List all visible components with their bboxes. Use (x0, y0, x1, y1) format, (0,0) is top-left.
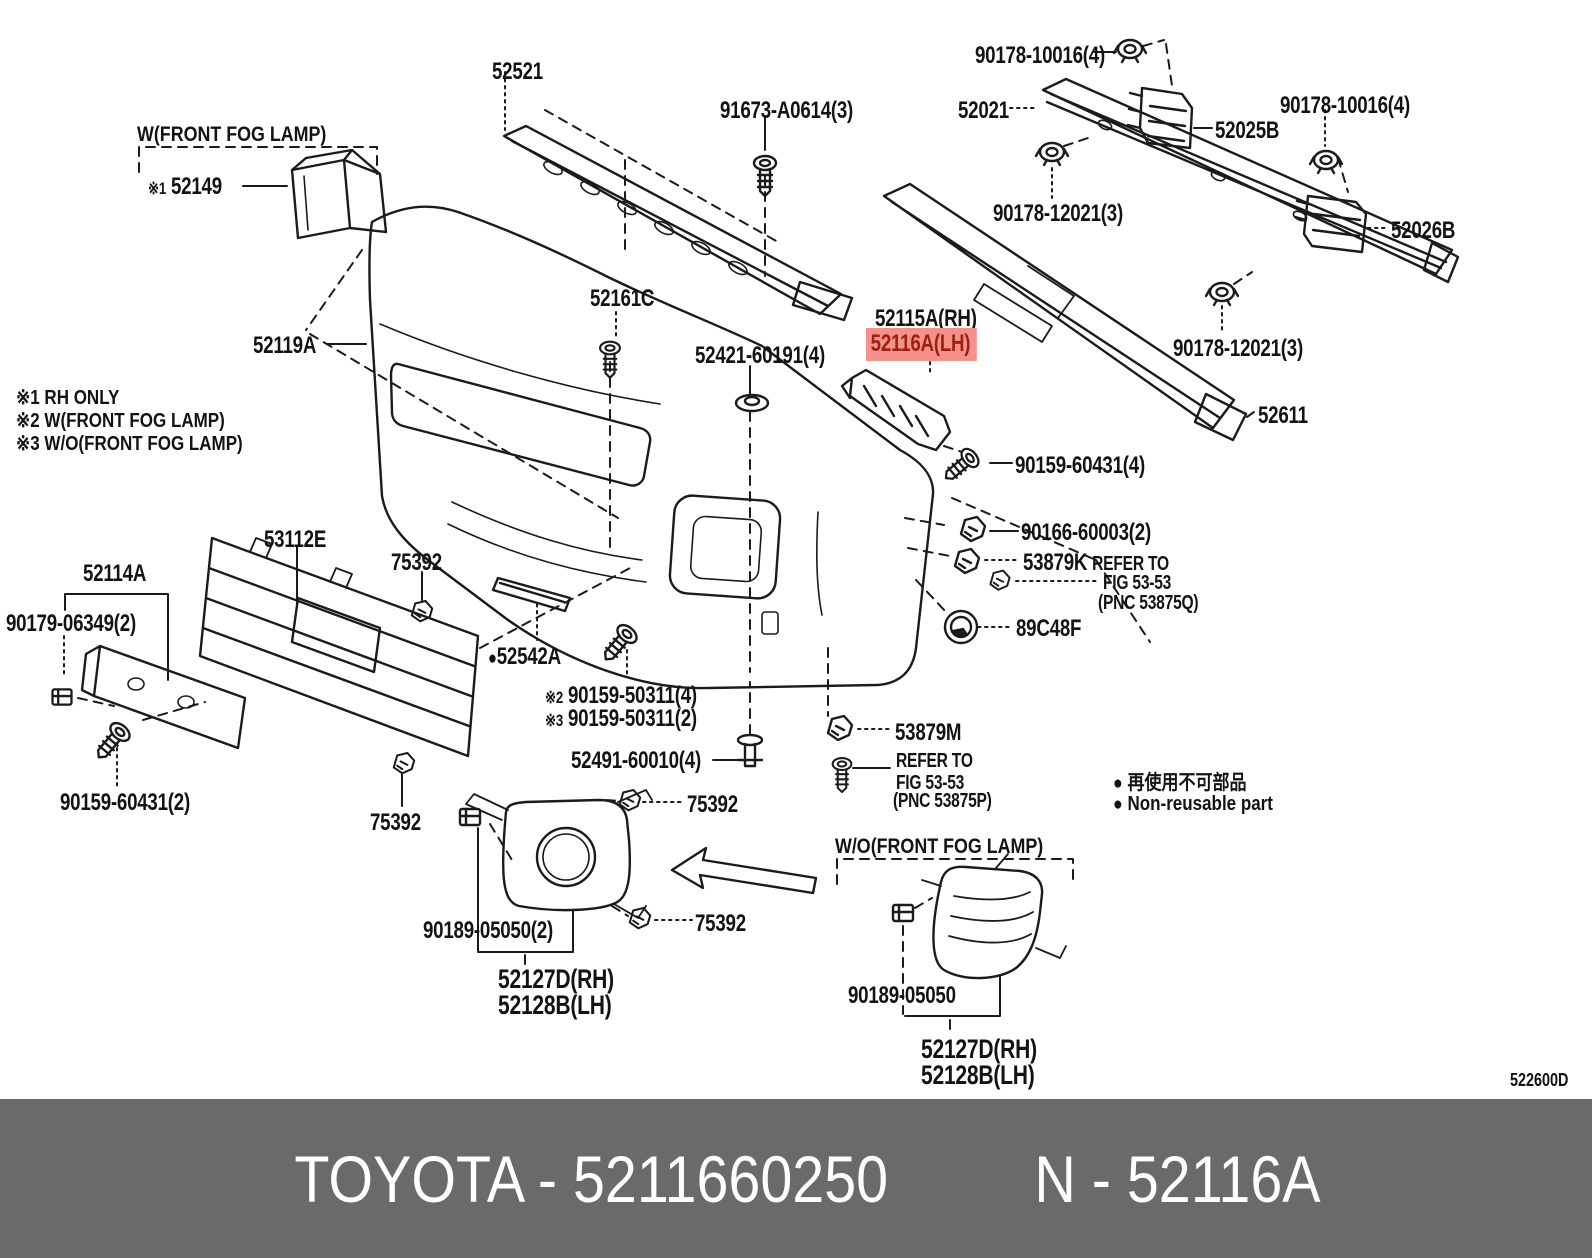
part-label-75392-fog-bottom: 75392 (695, 910, 746, 938)
part-label-90179-06349: 90179-06349(2) (6, 610, 136, 638)
part-label-90159-60431-2: 90159-60431(2) (60, 789, 190, 817)
refer-note-53875P-line1: REFER TO (896, 750, 973, 773)
part-label-52521: 52521 (492, 58, 543, 86)
clip-90189-05050-right (893, 905, 913, 921)
part-label-53112E: 53112E (264, 526, 326, 554)
part-label-52161C: 52161C (590, 285, 654, 313)
part-label-52611: 52611 (1258, 402, 1308, 430)
part-label-90178-12021-left: 90178-12021(3) (993, 200, 1123, 228)
note-ref-1: ※1 (148, 179, 166, 198)
bumper-cover-52119A (369, 207, 933, 689)
nut-90179-06349 (53, 689, 72, 704)
part-label-90189-05050-2: 90189-05050(2) (423, 917, 553, 945)
part-label-90159-50311-2: ※3 90159-50311(2) (545, 705, 697, 733)
group-header-without-fog-lamp: W/O(FRONT FOG LAMP) (835, 835, 1043, 859)
part-label-52128B-right: 52128B(LH) (921, 1060, 1035, 1091)
footnote-2: ※2 W(FRONT FOG LAMP) (16, 408, 225, 433)
clip-75392-fog-bottom (630, 908, 650, 928)
clip-75392-grille-top (412, 601, 432, 621)
direction-arrow (672, 848, 816, 893)
part-label-90178-12021-right: 90178-12021(3) (1173, 335, 1303, 363)
note-ref-3: ※3 (545, 711, 563, 730)
part-label-91673-A0614: 91673-A0614(3) (720, 97, 853, 125)
clip-refer-53875Q (990, 571, 1009, 590)
legend-bullet-jp: ● (1113, 773, 1123, 794)
part-label-52116A-LH-highlighted: 52116A(LH) (866, 328, 977, 361)
part-label-52491-60010: 52491-60010(4) (571, 747, 701, 775)
clip-53879M (828, 716, 852, 740)
part-label-75392-grille-bottom: 75392 (370, 809, 421, 837)
clip-90189-05050-left (460, 809, 480, 825)
part-label-52542A: ●52542A (488, 643, 561, 671)
license-plate-bracket-52114A (82, 646, 245, 748)
bolt-refer-53875P (833, 758, 852, 792)
fog-lamp-bezel-52127D-52128B-left (466, 790, 652, 918)
part-label-90159-60431-4: 90159-60431(4) (1015, 452, 1145, 480)
part-label-52114A: 52114A (83, 560, 146, 588)
part-label-52149: ※1 52149 (148, 173, 222, 201)
part-label-52021: 52021 (958, 97, 1009, 125)
grommet-89C48F (945, 611, 977, 643)
refer-note-53875P-line3: (PNC 53875P) (893, 790, 992, 813)
nut-90178-12021-right (1206, 283, 1238, 305)
part-label-75392-fog-top: 75392 (687, 791, 738, 819)
footer-reference-number: N - 52116A (1034, 1141, 1320, 1217)
part-label-90178-10016-top: 90178-10016(4) (975, 42, 1105, 70)
footnote-1: ※1 RH ONLY (16, 385, 119, 410)
part-label-90189-05050: 90189-05050 (848, 982, 956, 1010)
part-label-53879M: 53879M (895, 719, 961, 747)
non-reusable-bullet-52542A: ● (488, 648, 497, 669)
part-label-52421-60191: 52421-60191(4) (695, 342, 825, 370)
washer-52421-60191 (736, 395, 768, 411)
part-label-75392-grille-top: 75392 (391, 549, 442, 577)
nut-90178-10016-right (1310, 151, 1342, 173)
exploded-view-drawing (0, 0, 1592, 1258)
part-label-90178-10016-right: 90178-10016(4) (1280, 92, 1410, 120)
refer-note-53875Q-line3: (PNC 53875Q) (1098, 592, 1198, 615)
part-label-52119A: 52119A (253, 332, 316, 360)
part-label-52026B: 52026B (1391, 217, 1455, 245)
radiator-support-52521 (504, 126, 852, 320)
parts-diagram-page: W(FRONT FOG LAMP) ※1 52149 52521 91673-A… (0, 0, 1592, 1258)
legend-bullet-en: ● (1113, 794, 1123, 815)
clip-90166-60003 (961, 517, 985, 541)
drawing-code: 522600D (1510, 1070, 1568, 1091)
clip-53879K (955, 549, 979, 573)
bolt-90159-50311 (597, 622, 640, 667)
part-label-52025B: 52025B (1215, 117, 1279, 145)
side-support-52115A-52116A (842, 370, 950, 450)
bolt-90159-60431-2 (90, 720, 133, 765)
footnote-3: ※3 W/O(FRONT FOG LAMP) (16, 431, 243, 456)
part-label-90166-60003: 90166-60003(2) (1021, 519, 1151, 547)
rivet-52491-60010 (738, 735, 762, 766)
group-header-with-fog-lamp: W(FRONT FOG LAMP) (137, 123, 326, 147)
legend-non-reusable-en: ● Non-reusable part (1113, 793, 1273, 816)
bolt-52161C (600, 342, 620, 378)
footer-bar: TOYOTA - 5211660250 N - 52116A (0, 1099, 1592, 1258)
nut-90178-10016-top (1114, 40, 1146, 62)
clip-75392-grille-bottom (394, 753, 414, 773)
footer-brand-part-number: TOYOTA - 5211660250 (295, 1141, 889, 1217)
fog-lamp-cover-52127D-52128B-right (922, 854, 1066, 978)
legend-non-reusable-jp: ● 再使用不可部品 (1113, 766, 1246, 795)
part-label-52128B-left: 52128B(LH) (498, 990, 612, 1021)
part-label-89C48F: 89C48F (1016, 615, 1081, 643)
